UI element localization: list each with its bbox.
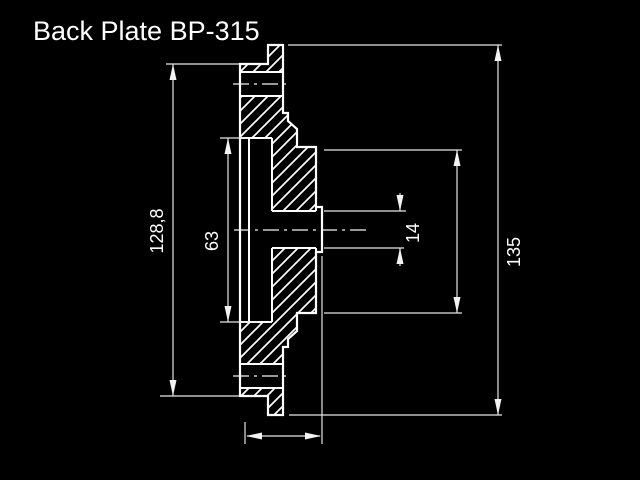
drawing-canvas: Back Plate BP-315 [0,0,640,480]
dim-label-135: 135 [504,237,524,267]
dim-label-63: 63 [202,231,222,251]
dim-label-14: 14 [403,223,423,243]
background [0,0,640,480]
backplate-drawing: Back Plate BP-315 [0,0,640,480]
dim-label-128-8: 128,8 [147,208,167,253]
drawing-title: Back Plate BP-315 [33,16,260,46]
